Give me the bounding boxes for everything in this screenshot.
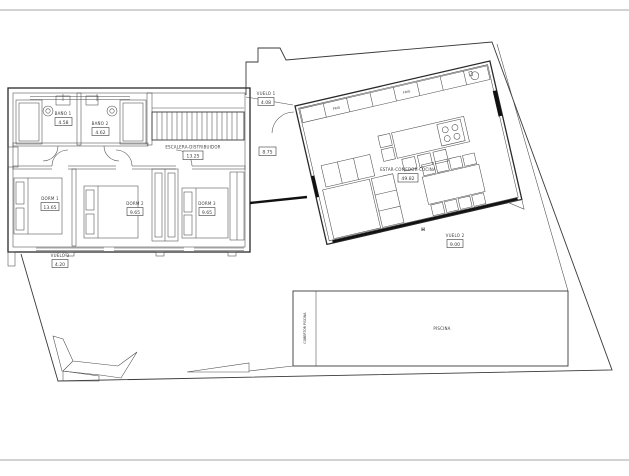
terrain-sketch-icon [53,336,137,381]
pool-label: PISCINA [433,326,450,331]
floor-plan-page: FRIG FRIG [0,0,629,476]
room-label-vuelo3: VUELO 3 [51,253,70,258]
h-marker: H [421,227,425,233]
porch-connection [246,97,307,203]
room-label-bano1: BAÑO 1 [55,111,72,116]
room-label-dorm3: DORM 3 [198,201,216,206]
toilet-icon [43,106,53,116]
door-arc-icon [116,150,132,166]
stool-icon [381,147,395,161]
room-label-dorm1: DORM 1 [41,196,59,201]
sink-icon [86,96,98,105]
window-icon [30,94,130,101]
closet-icon [230,172,244,240]
room-label-vuelo1: VUELO 1 [257,91,276,96]
toilet-icon [107,106,117,116]
room-label-estar: ESTAR-COMEDOR-COCINA [380,167,436,172]
fridge-label: FRIG [403,89,412,95]
area-badge-bano2: 4.62 [95,130,105,136]
area-badge-porch: 8.75 [262,150,272,156]
bedroom-wing [8,88,250,266]
door-arc-icon [43,146,58,161]
stairs-icon [152,108,244,140]
rug-icon [323,179,381,239]
room-label-vuelo2: VUELO 2 [446,233,465,238]
cooktop-icon [437,119,465,146]
area-badge-dorm3: 9.65 [202,210,212,216]
pool-cover-label: COBERTOR PISCINA [303,312,307,344]
kitchen-counter-icon: FRIG FRIG [300,66,490,123]
area-badge-vuelo1: 4.08 [261,100,271,106]
area-badge-dorm1: 13.65 [43,205,56,211]
area-badge-estar: 49.82 [401,176,414,182]
pool: PISCINA COBERTOR PISCINA [293,291,568,366]
area-badge-bano1: 4.58 [58,120,68,126]
room-labels: BAÑO 1 4.58 BAÑO 2 4.62 ESCALERA-DISTRIB… [41,91,465,268]
living-wing: FRIG FRIG [295,61,524,254]
door-arc-icon [104,146,119,161]
door-arc-icon [272,112,294,133]
room-label-bano2: BAÑO 2 [92,121,109,126]
door-arc-icon [52,150,68,166]
area-badge-dorm2: 9.65 [130,210,140,216]
fridge-label: FRIG [332,105,341,111]
wardrobe-icon [152,169,178,241]
room-label-escalera: ESCALERA-DISTRIBUIDOR [165,145,220,150]
stool-icon [378,133,392,147]
floor-plan-drawing: FRIG FRIG [0,0,629,476]
stool-icon [417,153,432,168]
area-badge-vuelo2: 9.00 [450,242,460,248]
area-badge-escalera: 13.25 [186,154,199,160]
shower-icon [16,100,42,144]
area-badge-vuelo3: 4.20 [55,262,65,268]
shower-icon [120,100,146,144]
room-label-dorm2: DORM 2 [126,201,144,206]
sofa-icon [317,150,404,238]
